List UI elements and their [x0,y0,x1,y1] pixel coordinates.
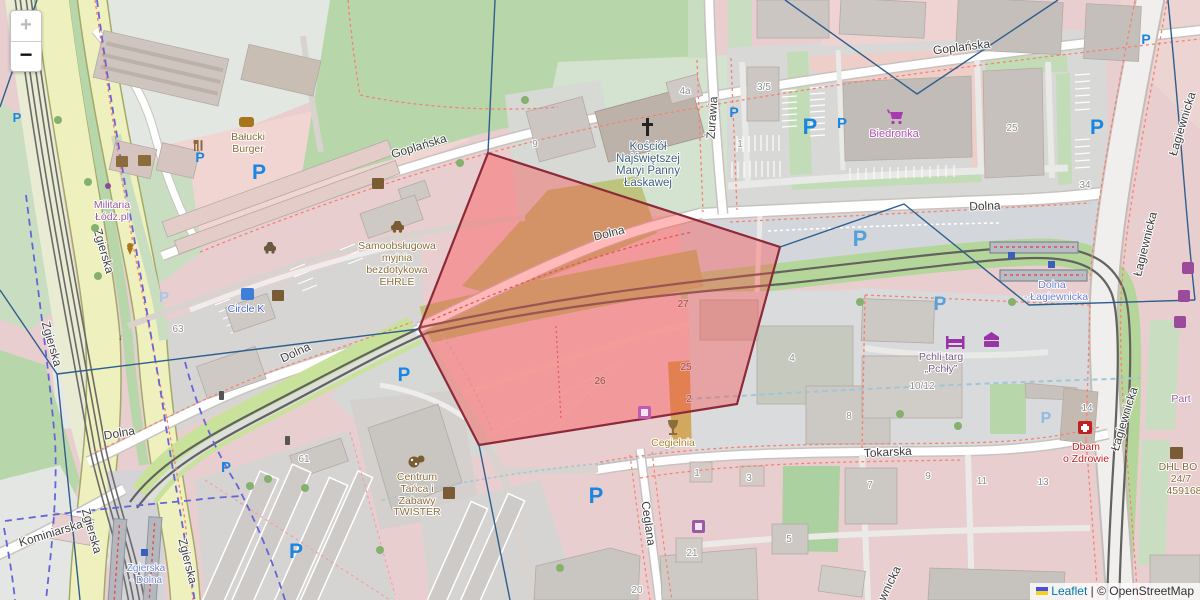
svg-text:P: P [252,161,266,184]
svg-text:P: P [159,289,169,306]
svg-text:459168: 459168 [1166,485,1200,497]
svg-text:11: 11 [977,476,988,487]
svg-text:Dolna: Dolna [969,198,1001,213]
svg-text:P: P [589,483,604,508]
svg-text:Tańca i: Tańca i [400,483,433,495]
svg-text:P: P [1090,116,1104,139]
svg-text:10/12: 10/12 [909,381,934,392]
svg-text:Tokarska: Tokarska [863,444,912,461]
svg-text:Najświętszej: Najświętszej [616,153,680,165]
svg-text:Zgierska: Zgierska [127,563,166,574]
svg-text:bezdotykowa: bezdotykowa [366,264,427,276]
svg-text:Cegielnia: Cegielnia [651,437,695,449]
svg-text:P: P [1041,410,1052,427]
svg-text:Pchli-targ: Pchli-targ [919,351,964,363]
svg-text:Dolna: Dolna [1038,279,1066,291]
svg-text:P: P [195,149,204,165]
svg-text:Circle K: Circle K [228,303,265,315]
svg-text:61: 61 [298,454,310,465]
svg-text:P: P [13,110,22,125]
svg-text:- Dolna: - Dolna [130,575,163,586]
svg-text:4a: 4a [679,86,691,97]
svg-text:20: 20 [631,585,643,596]
svg-text:P: P [803,114,818,139]
svg-text:Centrum: Centrum [397,471,438,483]
svg-text:9: 9 [532,139,538,150]
svg-text:P: P [1141,31,1150,47]
svg-text:27: 27 [677,299,689,310]
svg-text:3: 3 [746,473,752,484]
svg-text:1: 1 [737,139,743,150]
svg-text:„Pchły”: „Pchły” [925,363,958,375]
svg-text:P: P [729,104,738,120]
svg-text:Kościół: Kościół [629,141,667,153]
svg-text:21: 21 [686,548,698,559]
svg-text:24/7: 24/7 [1171,473,1192,485]
svg-text:3/5: 3/5 [757,82,771,93]
svg-text:8: 8 [846,411,852,422]
svg-text:25: 25 [680,362,692,373]
svg-text:Łódz.pl: Łódz.pl [95,211,129,223]
svg-text:Maryi Panny: Maryi Panny [616,165,680,177]
svg-text:13: 13 [1037,477,1049,488]
svg-text:EHRLE: EHRLE [379,276,414,288]
svg-text:Bałucki: Bałucki [231,131,265,143]
svg-text:o Zdrowie: o Zdrowie [1063,453,1109,465]
svg-text:5: 5 [786,534,792,545]
svg-text:P: P [853,226,868,251]
svg-text:4: 4 [789,353,795,364]
svg-text:myjnia: myjnia [382,252,413,264]
svg-text:Dbam: Dbam [1072,441,1100,453]
svg-text:P: P [289,540,303,563]
svg-text:Biedronka: Biedronka [869,128,919,140]
svg-text:2: 2 [686,394,692,405]
svg-text:P: P [934,294,947,315]
svg-text:Żurawia: Żurawia [704,96,721,140]
svg-text:Part: Part [1171,393,1190,405]
svg-text:9: 9 [925,471,931,482]
svg-text:DHL BO: DHL BO [1159,461,1198,473]
svg-text:P: P [221,459,231,476]
svg-text:14: 14 [1081,403,1093,414]
svg-text:25: 25 [1006,123,1018,134]
svg-text:Burger: Burger [232,143,264,155]
svg-text:7: 7 [867,480,873,491]
svg-text:P: P [398,365,411,386]
svg-text:26: 26 [594,376,606,387]
svg-text:- Łagiewnicka: - Łagiewnicka [1024,291,1088,303]
svg-text:TWISTER: TWISTER [393,506,441,518]
svg-text:1: 1 [694,468,700,479]
svg-text:Łaskawej: Łaskawej [624,177,672,189]
svg-text:P: P [837,115,847,132]
svg-text:34: 34 [1079,180,1091,191]
svg-text:63: 63 [172,324,184,335]
svg-text:Samoobsługowa: Samoobsługowa [358,240,436,252]
svg-text:Militaria: Militaria [94,199,130,211]
